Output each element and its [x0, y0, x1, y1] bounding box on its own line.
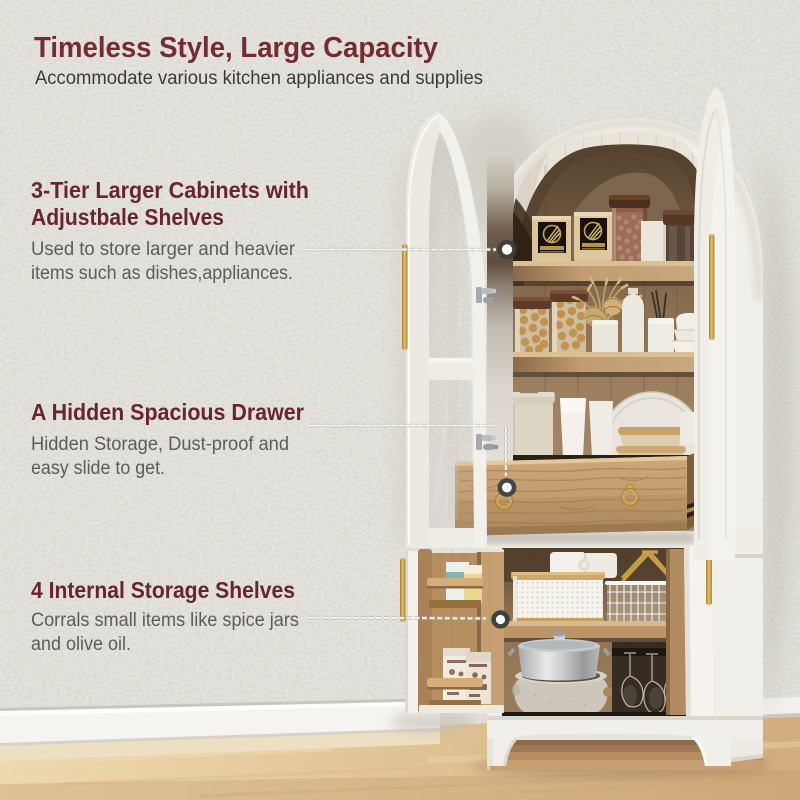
svg-text:A Hidden Spacious Drawer: A Hidden Spacious Drawer [31, 399, 304, 425]
svg-text:easy slide to get.: easy slide to get. [31, 458, 165, 479]
svg-text:4 Internal Storage Shelves: 4 Internal Storage Shelves [31, 577, 295, 603]
svg-text:Accommodate various kitchen ap: Accommodate various kitchen appliances a… [35, 68, 483, 89]
svg-text:Used to store larger and heavi: Used to store larger and heavier [31, 239, 296, 260]
svg-text:Adjustbale Shelves: Adjustbale Shelves [31, 204, 224, 230]
svg-text:3-Tier Larger Cabinets with: 3-Tier Larger Cabinets with [31, 177, 309, 203]
svg-text:items such as dishes,appliance: items such as dishes,appliances. [31, 263, 293, 284]
svg-text:and olive oil.: and olive oil. [31, 634, 131, 655]
svg-text:Timeless Style, Large Capacity: Timeless Style, Large Capacity [34, 32, 438, 64]
svg-text:Corrals small items like spice: Corrals small items like spice jars [31, 610, 299, 631]
svg-text:Hidden Storage, Dust-proof and: Hidden Storage, Dust-proof and [31, 434, 289, 455]
